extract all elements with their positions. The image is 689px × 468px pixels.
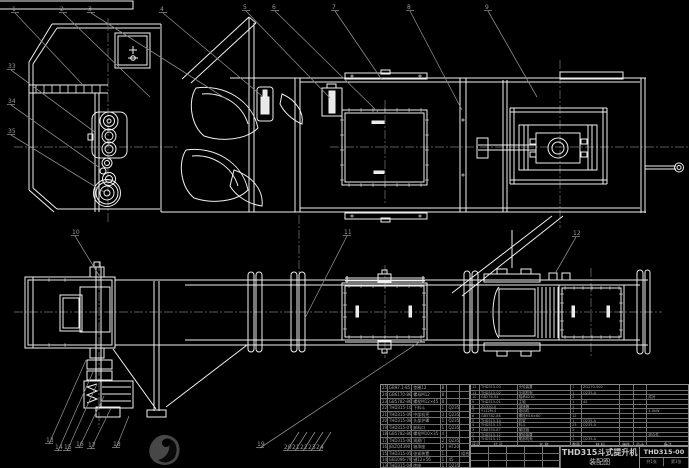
bom-cell: 尾轮装置 xyxy=(518,433,571,437)
bom-cell: 7 xyxy=(471,409,480,413)
bom-cell: 19 xyxy=(381,425,388,430)
bom-cell: THD315-10 xyxy=(388,405,412,410)
bolt-cross xyxy=(422,303,426,307)
bolt-cross xyxy=(340,133,344,137)
bolt-cross xyxy=(383,108,387,112)
bolt-cross xyxy=(343,303,347,307)
bolt-cross xyxy=(359,183,363,187)
callout-number: 1 xyxy=(12,6,16,13)
bom-cell: 9 xyxy=(471,400,480,404)
bom-cell xyxy=(647,391,688,395)
bom-cell xyxy=(620,428,634,432)
bolt-cross xyxy=(340,148,344,152)
bom-cell: 5 xyxy=(471,419,480,423)
bolt-cross xyxy=(47,343,51,347)
bom-cell: 主轴 xyxy=(518,400,571,404)
bom-cell: 8 xyxy=(441,385,448,391)
signature-cell xyxy=(543,454,561,461)
leader-line xyxy=(488,11,537,97)
bom-cell xyxy=(620,400,634,404)
bolt-cross xyxy=(347,108,351,112)
bom-cell: 25 xyxy=(381,385,388,391)
bolt-cross xyxy=(599,335,603,339)
bolt-cross xyxy=(572,335,576,339)
title-block: THD315斗式提升机 装配图 THD315-00 共1张 第1张 xyxy=(470,446,689,468)
bom-cell xyxy=(634,395,648,399)
bom-row: 13THD315-04底座1Q235-A xyxy=(381,462,469,468)
bom-row: 10GB276-94轴承62102成对 xyxy=(471,394,688,399)
callout-number: 33 xyxy=(8,63,16,70)
bom-cell xyxy=(582,433,620,437)
inspection-door-plan xyxy=(342,270,427,353)
bom-cell: 1 xyxy=(571,405,582,409)
bom-cell xyxy=(634,391,648,395)
bolt-cross xyxy=(359,335,363,339)
callout-number: 3 xyxy=(88,6,92,13)
bom-row: 17THD315-06观察门2Q235-A xyxy=(381,437,469,443)
bom-cell: 头部护罩 xyxy=(412,418,440,423)
bom-cell: 18 xyxy=(381,431,388,436)
bolt-cross xyxy=(31,278,35,282)
bom-cell xyxy=(447,431,460,436)
bom-cell: 1 xyxy=(441,425,448,430)
bolt-cross xyxy=(461,173,465,177)
bolt-cross xyxy=(563,286,567,290)
bom-row: 23GB5782-86螺栓M12×458 xyxy=(381,398,469,404)
bom-cell: 输送链 xyxy=(518,428,571,432)
ink-blot xyxy=(149,435,179,465)
bom-cell xyxy=(634,405,648,409)
bom-cell xyxy=(634,419,648,423)
bom-row: 14GB1096-79键12×56145 xyxy=(381,456,469,462)
bom-cell: 1 xyxy=(571,385,582,390)
bolt-cross xyxy=(425,118,429,122)
callout-number: 2 xyxy=(60,6,64,13)
bolt-cross xyxy=(425,178,429,182)
buckets xyxy=(181,87,302,206)
bom-cell xyxy=(647,437,688,441)
callout-number: 9 xyxy=(485,4,489,11)
bom-cell: 4 xyxy=(471,423,480,427)
bom-cell xyxy=(634,423,648,427)
bom-cell: 17 xyxy=(381,438,388,443)
signature-cell xyxy=(507,454,525,461)
bom-cell: 1 xyxy=(571,437,582,441)
bom-cell: THD315-11 xyxy=(480,437,518,441)
bolt-cross xyxy=(425,163,429,167)
bolt-cross xyxy=(63,278,67,282)
bom-cell xyxy=(647,414,688,418)
bolt-cross xyxy=(407,183,411,187)
leader-line xyxy=(275,11,378,112)
signature-cell xyxy=(543,447,561,454)
leader-line xyxy=(410,11,462,110)
bom-cell: 轴承座 xyxy=(412,444,440,449)
bom-row: 15THD315-05张紧装置1组合件 xyxy=(381,450,469,456)
bom-cell xyxy=(582,405,620,409)
bom-cell: 成对 xyxy=(647,395,688,399)
bolt-cross xyxy=(560,292,564,296)
bolt-cross xyxy=(343,315,347,319)
bom-cell: 45 xyxy=(447,457,460,462)
bom-cell: 减速器 xyxy=(518,405,571,409)
bom-cell: Q235-A xyxy=(582,391,620,395)
bom-cell: Q235-A xyxy=(447,438,460,443)
bom-cell: GB1096-79 xyxy=(388,457,412,462)
leader-line xyxy=(11,70,96,133)
bolt-cross xyxy=(619,328,623,332)
tension-bolt xyxy=(322,84,342,116)
callout-number: 22 xyxy=(300,444,308,451)
bom-row: 1THD315-11尾部机壳1Q235-A xyxy=(471,436,688,441)
bolt-cross xyxy=(407,108,411,112)
bolt-cross xyxy=(383,183,387,187)
bom-cell xyxy=(620,409,634,413)
bom-cell xyxy=(460,412,469,417)
bom-row: 7Y112M-4电动机14.0kW xyxy=(471,408,688,413)
bom-row: 20THD315-08头部护罩1Q235-A xyxy=(381,417,469,423)
signature-cell xyxy=(471,454,489,461)
title-area: THD315斗式提升机 装配图 xyxy=(560,447,640,468)
bolt-cross xyxy=(407,335,411,339)
bom-cell: 1 xyxy=(571,409,582,413)
bolt-cross xyxy=(560,310,564,314)
callout-number: 34 xyxy=(8,98,16,105)
bolt-cross xyxy=(395,108,399,112)
bom-cell: GB6170-86 xyxy=(388,392,412,397)
bolt-cross xyxy=(563,335,567,339)
leader-line xyxy=(335,11,382,80)
bom-cell: 12 xyxy=(471,385,480,390)
signature-cell xyxy=(489,461,507,468)
bolt-cross xyxy=(608,286,612,290)
bom-cell xyxy=(460,431,469,436)
bolt-cross xyxy=(371,183,375,187)
bom-cell: 6 xyxy=(471,414,480,418)
bom-cell: THD315-09 xyxy=(388,412,412,417)
bom-cell: 1 xyxy=(571,419,582,423)
bom-cell xyxy=(647,385,688,390)
bom-cell: Q235-A xyxy=(582,419,620,423)
inspection-door-top-view xyxy=(342,70,427,222)
bom-cell: 2 xyxy=(441,444,448,449)
bolt-cross xyxy=(608,335,612,339)
drawing-title: THD315斗式提升机 xyxy=(560,447,639,458)
bom-cell xyxy=(460,418,469,423)
bom-cell xyxy=(634,385,648,390)
bolt-cross xyxy=(581,286,585,290)
bom-row: 25GB97.1-85垫圈128 xyxy=(381,385,469,391)
bom-cell: 10 xyxy=(471,395,480,399)
bolt-cross xyxy=(340,178,344,182)
bom-cell: Q235-A xyxy=(447,412,460,417)
tail-section-plan xyxy=(484,269,624,356)
bom-cell xyxy=(460,463,469,468)
signature-cell xyxy=(471,461,489,468)
bom-cell: GB97.1-85 xyxy=(388,385,412,391)
bom-cell xyxy=(582,395,620,399)
bolt-cross xyxy=(572,286,576,290)
bom-cell: HT200 xyxy=(447,444,460,449)
bom-cell xyxy=(460,444,469,449)
bolt-cross xyxy=(343,327,347,331)
bom-cell: THD315-12 xyxy=(480,433,518,437)
bolt-cross xyxy=(581,335,585,339)
bom-row: 16JB/ZQ4390轴承座2HT200 xyxy=(381,443,469,449)
bolt-cross xyxy=(560,328,564,332)
bom-cell: Q235-A xyxy=(447,405,460,410)
bom-row: 21THD315-09中部机壳3Q235-A xyxy=(381,411,469,417)
bolt-cross xyxy=(425,148,429,152)
bom-cell: 13 xyxy=(381,463,388,468)
bom-cell: 卸料口 xyxy=(412,425,440,430)
leader-line xyxy=(91,13,228,100)
bom-cell: 中部机壳 xyxy=(412,412,440,417)
bom-cell: 组合件 xyxy=(647,433,688,437)
bom-cell: 1 xyxy=(441,405,448,410)
bom-cell: 1 xyxy=(571,433,582,437)
bom-cell: 螺栓M16×60 xyxy=(518,414,571,418)
bom-row: 19THD315-07卸料口1Q235-A xyxy=(381,424,469,430)
callout-number: 21 xyxy=(292,444,300,451)
bom-cell xyxy=(634,414,648,418)
transition-chute xyxy=(452,216,563,296)
bom-cell xyxy=(647,423,688,427)
bom-cell xyxy=(620,395,634,399)
bom-cell: Y112M-4 xyxy=(480,409,518,413)
bom-cell: THD315-06 xyxy=(388,438,412,443)
signature-cell xyxy=(507,461,525,468)
bom-cell: GB5782-86 xyxy=(388,431,412,436)
drawing-number-area: THD315-00 共1张 第1张 xyxy=(640,447,688,468)
bom-cell xyxy=(582,409,620,413)
bom-cell: 4.0kW xyxy=(647,409,688,413)
callout-number: 20 xyxy=(284,444,292,451)
bom-row: 3GB8350-87输送链2 xyxy=(471,427,688,432)
bom-row: 6GB5782-86螺栓M16×6012 xyxy=(471,413,688,418)
bom-cell: ZQ350-Ⅱ xyxy=(480,405,518,409)
bolt-cross xyxy=(31,343,35,347)
bom-cell: 底座 xyxy=(412,463,440,468)
bom-cell: 8 xyxy=(441,399,448,404)
leader-line xyxy=(556,237,576,272)
bom-cell: 尾部机壳 xyxy=(518,437,571,441)
bom-cell: GB5782-86 xyxy=(480,414,518,418)
cad-drawing-canvas: 1234567893334351011121314151617181920212… xyxy=(0,0,689,468)
bom-cell: 3 xyxy=(471,428,480,432)
bom-cell xyxy=(447,385,460,391)
bolt-cross xyxy=(560,301,564,305)
bom-cell: 12 xyxy=(571,414,582,418)
bom-cell: THD315-03 xyxy=(480,385,518,390)
callout-number: 17 xyxy=(88,442,96,449)
bom-cell xyxy=(460,399,469,404)
bom-cell: Q235-A xyxy=(447,425,460,430)
bom-cell xyxy=(620,419,634,423)
bom-cell: 2 xyxy=(471,433,480,437)
bom-cell: 料斗 xyxy=(518,423,571,427)
bom-cell: 螺栓M12×45 xyxy=(412,399,440,404)
leader-line xyxy=(63,13,150,97)
callout-number: 23 xyxy=(308,444,316,451)
bom-cell: 21 xyxy=(381,412,388,417)
bolt-cross xyxy=(347,335,351,339)
bolt-cross xyxy=(619,319,623,323)
bom-cell: THD315-14 xyxy=(480,419,518,423)
bom-cell: 8 xyxy=(471,405,480,409)
bom-cell: 1 xyxy=(471,437,480,441)
bom-row: 5THD315-14机架1Q235-A xyxy=(471,418,688,423)
bom-row: 22THD315-10下料斗1Q235-A xyxy=(381,404,469,410)
bolt-cross xyxy=(599,286,603,290)
bolt-cross xyxy=(422,327,426,331)
bom-cell xyxy=(582,428,620,432)
callout-number: 35 xyxy=(8,128,16,135)
bom-row: 8ZQ350-Ⅱ减速器1 xyxy=(471,404,688,409)
bolt-cross xyxy=(395,183,399,187)
signature-cell xyxy=(471,447,489,454)
bom-row: 12THD315-03头轮装置1ZG270-500 xyxy=(471,385,688,390)
callout-number: 10 xyxy=(72,229,80,236)
callout-number: 15 xyxy=(64,444,72,451)
bom-cell: 8 xyxy=(441,392,448,397)
callout-number: 4 xyxy=(160,6,164,13)
bom-cell: GB5782-86 xyxy=(388,399,412,404)
chain-wheel-stack xyxy=(88,112,127,207)
bom-cell xyxy=(647,405,688,409)
bolt-cross xyxy=(617,335,621,339)
bom-table-right: 12THD315-03头轮装置1ZG270-50011THD315-02头部机壳… xyxy=(470,384,689,446)
bom-cell xyxy=(460,457,469,462)
bolt-cross xyxy=(340,163,344,167)
bom-cell: JB/ZQ4390 xyxy=(388,444,412,449)
bom-cell xyxy=(620,437,634,441)
bom-cell: THD315-08 xyxy=(388,418,412,423)
bom-cell: Q235-A xyxy=(582,437,620,441)
callout-number: 6 xyxy=(272,4,276,11)
bolt-cross xyxy=(340,118,344,122)
bom-cell xyxy=(620,385,634,390)
bom-cell: 螺栓M10×35 xyxy=(412,431,440,436)
bom-cell xyxy=(620,423,634,427)
bom-cell: THD315-02 xyxy=(480,391,518,395)
bolt-cross xyxy=(418,74,422,78)
signature-cell xyxy=(507,447,525,454)
bom-cell: 45 xyxy=(582,400,620,404)
bom-cell: 头轮装置 xyxy=(518,385,571,390)
bom-cell: 23 xyxy=(381,399,388,404)
bom-cell: 头部机壳 xyxy=(518,391,571,395)
bom-cell xyxy=(460,385,469,391)
callout-number: 14 xyxy=(55,444,63,451)
head-hatch xyxy=(115,33,150,68)
bom-row: 18GB5782-86螺栓M10×354 xyxy=(381,430,469,436)
callout-number: 19 xyxy=(257,441,265,448)
bom-table-left: 25GB97.1-85垫圈12824GB6170-86螺母M12823GB578… xyxy=(380,384,470,468)
bom-cell: 观察门 xyxy=(412,438,440,443)
bom-cell: 2 xyxy=(571,395,582,399)
bom-cell: THD315-13 xyxy=(480,423,518,427)
leader-line xyxy=(163,13,262,96)
sheet-number: 第1张 xyxy=(664,458,688,466)
bom-cell: THD315-07 xyxy=(388,425,412,430)
bom-cell xyxy=(460,405,469,410)
drawing-number: THD315-00 xyxy=(640,447,688,458)
bom-cell: Q235-A xyxy=(447,463,460,468)
frame-corner xyxy=(0,1,133,9)
bom-cell xyxy=(647,419,688,423)
bom-cell: 24 xyxy=(381,392,388,397)
bom-row: 11THD315-02头部机壳1Q235-A xyxy=(471,390,688,395)
bolt-cross xyxy=(461,118,465,122)
head-section-plan xyxy=(25,262,115,381)
bolt-marks xyxy=(31,74,623,347)
bom-cell: 2 xyxy=(441,438,448,443)
bolt-cross xyxy=(619,301,623,305)
bom-cell: 22 xyxy=(381,405,388,410)
bom-row: 24GB6170-86螺母M128 xyxy=(381,391,469,397)
bom-cell: 1 xyxy=(571,391,582,395)
bolt-cross xyxy=(560,319,564,323)
callout-number: 8 xyxy=(407,4,411,11)
callout-number: 5 xyxy=(243,4,247,11)
bom-cell xyxy=(647,400,688,404)
callout-number: 16 xyxy=(76,441,84,448)
bom-row: 2THD315-12尾轮装置1组合件 xyxy=(471,432,688,437)
leader-line xyxy=(11,135,104,192)
bom-cell: 15 xyxy=(381,451,388,456)
bom-cell xyxy=(634,409,648,413)
bolt-cross xyxy=(47,278,51,282)
bom-cell xyxy=(620,405,634,409)
bom-row: 4THD315-13料斗23Q235-A xyxy=(471,422,688,427)
bom-cell: GB8350-87 xyxy=(480,428,518,432)
bom-cell xyxy=(647,428,688,432)
callout-number: 11 xyxy=(344,229,352,236)
bolt-cross xyxy=(359,108,363,112)
bolt-cross xyxy=(619,310,623,314)
bom-cell xyxy=(460,438,469,443)
bom-cell: 1 xyxy=(441,457,448,462)
leader-line xyxy=(49,360,86,444)
signature-grid xyxy=(471,447,560,468)
bom-cell xyxy=(634,433,648,437)
discharge-chute xyxy=(182,17,256,83)
bom-cell: 机架 xyxy=(518,419,571,423)
bolt-cross xyxy=(418,214,422,218)
leader-line xyxy=(305,236,347,318)
bolt-cross xyxy=(347,183,351,187)
bom-cell xyxy=(634,437,648,441)
bolt-cross xyxy=(383,335,387,339)
bom-cell: 1 xyxy=(441,463,448,468)
bom-cell: 3 xyxy=(441,412,448,417)
bom-cell: 4 xyxy=(441,431,448,436)
bom-cell xyxy=(447,399,460,404)
bom-cell: 键12×56 xyxy=(412,457,440,462)
chain-bolt xyxy=(257,87,273,121)
bom-cell xyxy=(460,425,469,430)
drawing-subtitle: 装配图 xyxy=(560,458,639,467)
bom-cell xyxy=(620,414,634,418)
bom-cell xyxy=(460,392,469,397)
bom-cell xyxy=(634,428,648,432)
bolt-cross xyxy=(422,315,426,319)
bolt-cross xyxy=(350,214,354,218)
bolt-cross xyxy=(343,291,347,295)
bom-cell: GB276-94 xyxy=(480,395,518,399)
bolt-cross xyxy=(63,343,67,347)
